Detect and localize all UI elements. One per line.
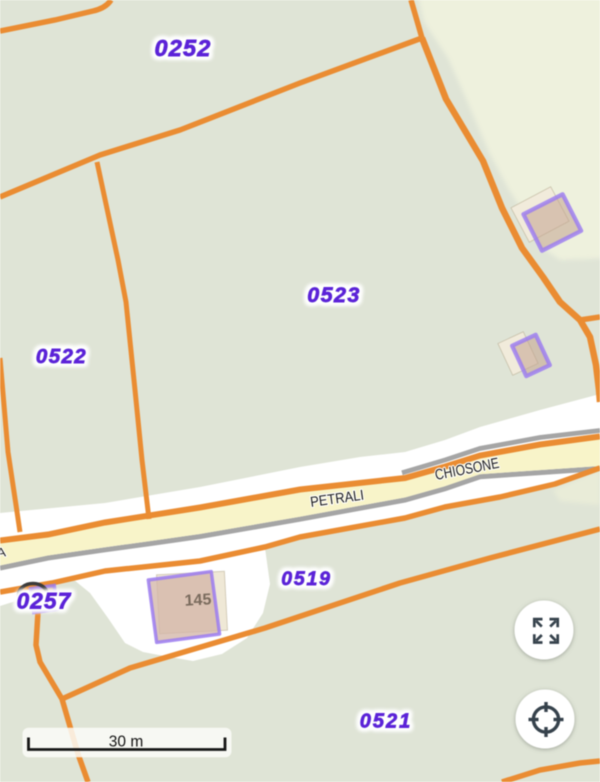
svg-text:0252: 0252 (154, 35, 211, 61)
svg-text:0257: 0257 (17, 589, 72, 614)
svg-text:0519: 0519 (281, 568, 332, 590)
svg-text:0523: 0523 (307, 283, 360, 307)
svg-text:0522: 0522 (36, 345, 87, 368)
svg-text:30 m: 30 m (109, 734, 143, 751)
svg-text:0521: 0521 (360, 711, 413, 733)
svg-text:145: 145 (184, 591, 212, 609)
